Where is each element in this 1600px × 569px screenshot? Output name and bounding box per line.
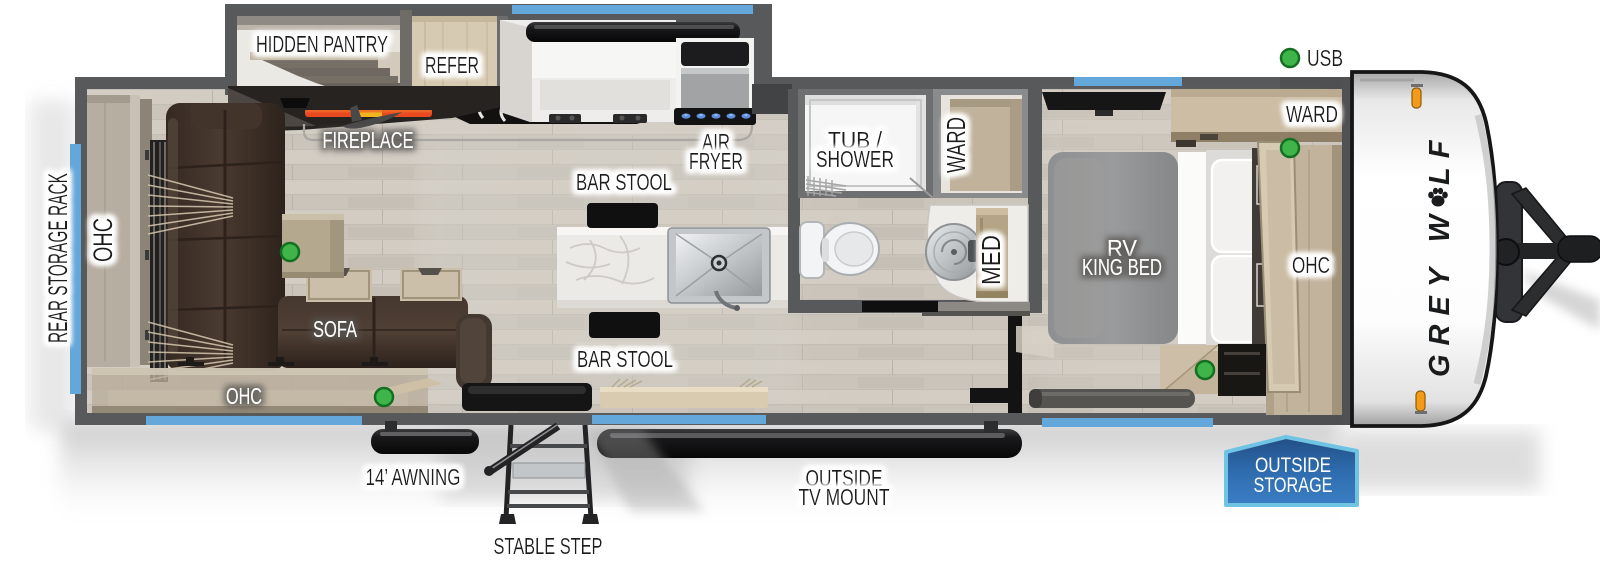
svg-text:BAR STOOL: BAR STOOL xyxy=(577,346,673,372)
svg-text:REFER: REFER xyxy=(425,52,479,78)
svg-text:FRYER: FRYER xyxy=(689,148,743,174)
svg-text:WARD: WARD xyxy=(1286,101,1338,127)
svg-text:STABLE STEP: STABLE STEP xyxy=(494,533,603,559)
svg-text:SHOWER: SHOWER xyxy=(816,146,894,172)
svg-text:OHC: OHC xyxy=(1292,252,1330,278)
svg-text:GREY W: GREY W xyxy=(1424,206,1456,377)
svg-text:SOFA: SOFA xyxy=(313,316,357,342)
svg-text:HIDDEN PANTRY: HIDDEN PANTRY xyxy=(256,31,388,57)
svg-text:REAR STORAGE RACK: REAR STORAGE RACK xyxy=(43,173,73,343)
svg-text:USB: USB xyxy=(1307,45,1343,71)
svg-text:OHC: OHC xyxy=(226,383,262,409)
svg-text:OHC: OHC xyxy=(88,218,118,262)
svg-text:TV MOUNT: TV MOUNT xyxy=(799,484,890,510)
svg-text:MED: MED xyxy=(976,235,1006,285)
svg-text:BAR STOOL: BAR STOOL xyxy=(576,169,672,195)
svg-text:KING BED: KING BED xyxy=(1082,254,1162,280)
svg-text:FIREPLACE: FIREPLACE xyxy=(323,127,414,153)
svg-text:STORAGE: STORAGE xyxy=(1254,474,1333,497)
svg-text:14’ AWNING: 14’ AWNING xyxy=(366,464,461,490)
svg-text:WARD: WARD xyxy=(941,117,971,173)
svg-text:LF: LF xyxy=(1424,132,1456,185)
